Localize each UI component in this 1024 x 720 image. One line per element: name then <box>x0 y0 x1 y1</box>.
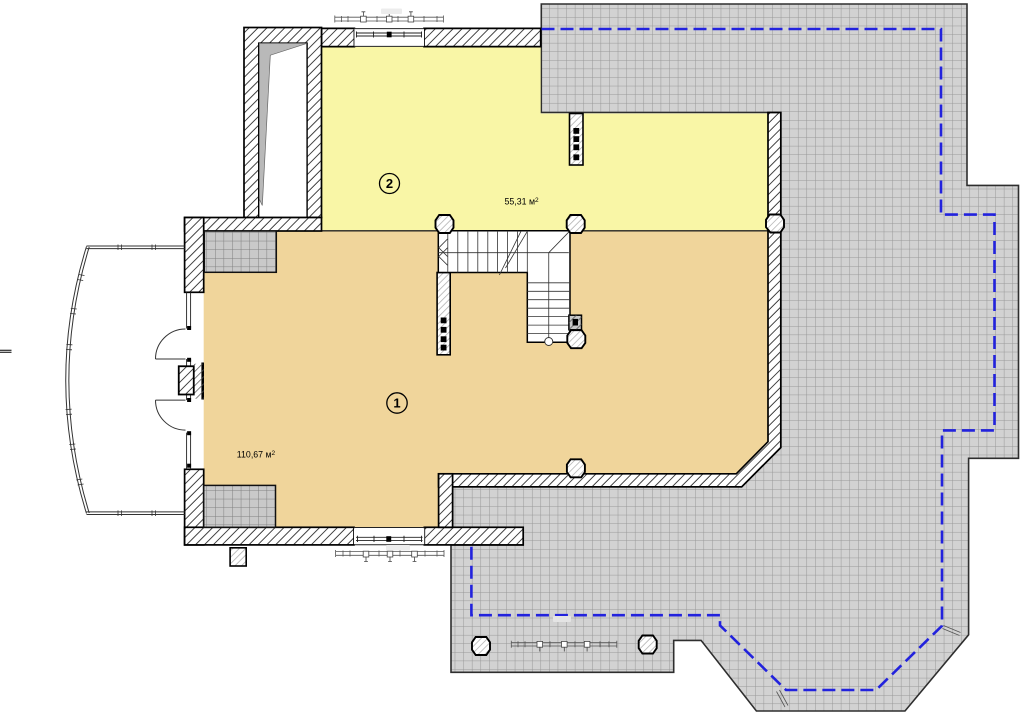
svg-text:1: 1 <box>393 396 400 411</box>
svg-text:2: 2 <box>386 176 393 191</box>
svg-text:55,31 м2: 55,31 м2 <box>505 197 540 207</box>
svg-text:110,67 м2: 110,67 м2 <box>237 450 276 460</box>
